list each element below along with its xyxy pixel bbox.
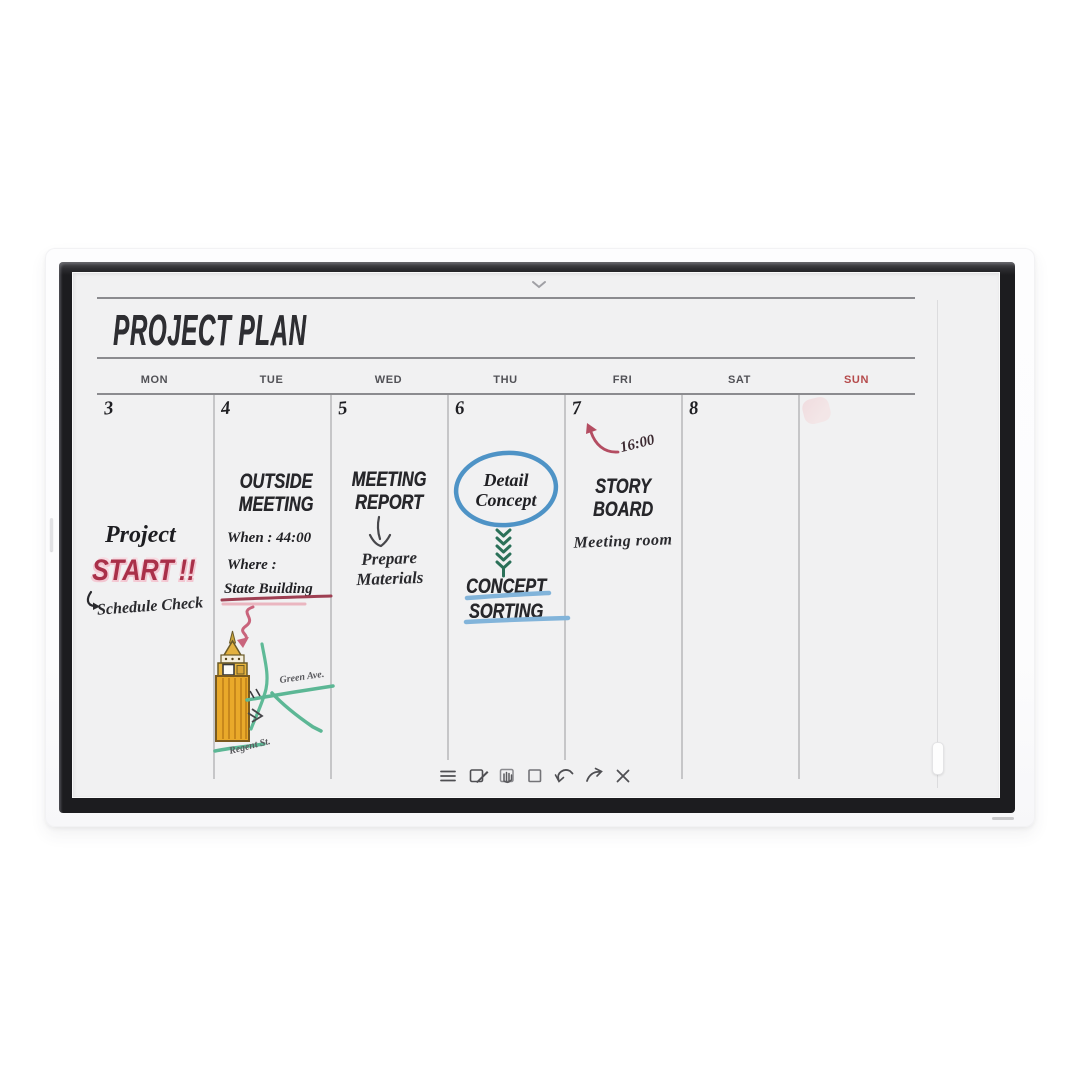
svg-text:Green Ave.: Green Ave. bbox=[279, 669, 325, 686]
